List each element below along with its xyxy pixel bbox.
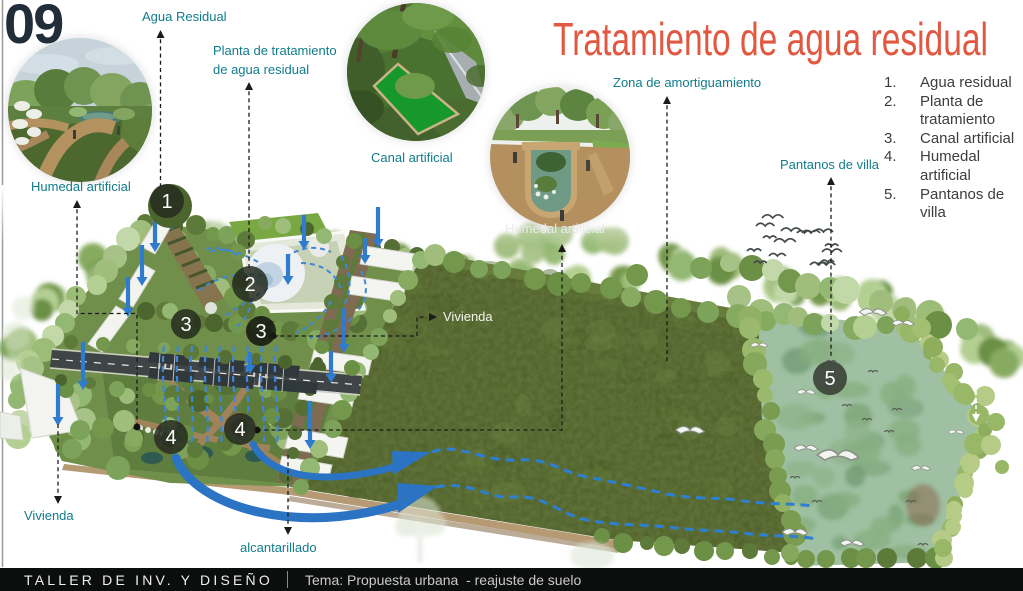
svg-text:3: 3 xyxy=(180,314,191,336)
svg-text:5: 5 xyxy=(824,368,835,390)
svg-text:3: 3 xyxy=(255,321,266,343)
svg-text:4: 4 xyxy=(234,419,245,441)
svg-text:2: 2 xyxy=(244,274,255,296)
svg-text:1: 1 xyxy=(161,191,172,213)
svg-text:4: 4 xyxy=(165,427,176,449)
